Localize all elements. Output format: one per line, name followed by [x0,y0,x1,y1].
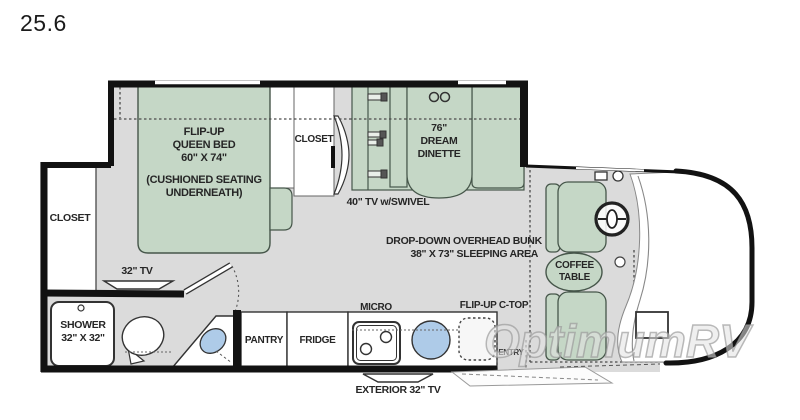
dinette-label: 76" DREAM DINETTE [404,122,474,161]
exterior-tv-label: EXTERIOR 32" TV [352,384,444,396]
optimumrv-watermark: OptimumRV [484,318,794,364]
overhead-bunk-label: DROP-DOWN OVERHEAD BUNK 38" X 73" SLEEPI… [386,235,538,261]
coffee-table-label: COFFEE TABLE [547,260,602,284]
queen-bed-label: FLIP-UP QUEEN BED 60" X 74" (CUSHIONED S… [134,126,274,200]
tv-32-label: 32" TV [117,265,157,277]
rear-closet [47,168,96,290]
tv-swivel-label: 40" TV w/SWIVEL [340,196,436,208]
rv-floorplan: 25.6 FLIP-UP QUEEN BED 60" X 74" (CUSHIO… [0,0,800,420]
stove-icon [353,322,400,364]
rear-closet-label: CLOSET [44,212,96,224]
fridge-label: FRIDGE [288,335,347,347]
micro-label: MICRO [356,302,396,314]
floorplan-model-number: 25.6 [20,10,67,37]
exterior-tv-icon [363,374,433,382]
pantry-label: PANTRY [242,335,286,347]
mid-closet-label: CLOSET [291,134,337,146]
shower-label: SHOWER 32" X 32" [54,319,112,345]
steering-wheel-icon [596,203,628,235]
flip-up-ctop-label: FLIP-UP C-TOP [455,300,533,312]
